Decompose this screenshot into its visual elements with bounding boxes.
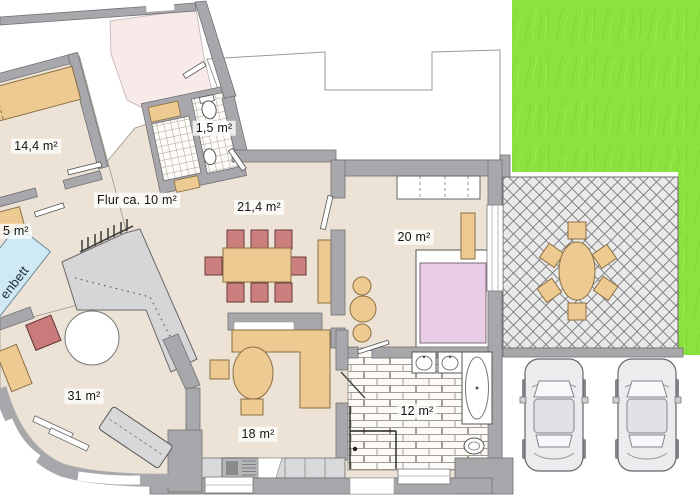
stool	[350, 296, 376, 322]
sideboard-pass	[234, 322, 294, 330]
room-label-21-4: 21,4 m²	[234, 200, 284, 215]
dining-chair	[289, 257, 306, 275]
dining-chair	[251, 283, 268, 302]
bedroom-wardrobe	[397, 176, 480, 199]
bedroom-top-wall	[336, 160, 502, 176]
dining-chair	[251, 230, 268, 249]
room-label-14-4: 14,4 m²	[11, 139, 61, 154]
room-label-12: 12 m²	[398, 404, 437, 419]
hall-label: Flur ca. 10 m²	[94, 193, 180, 208]
room-label-20: 20 m²	[395, 230, 434, 245]
dining-chair	[227, 230, 244, 249]
curved-window	[78, 476, 140, 480]
kitchen-chair	[210, 360, 229, 379]
room-label-31: 31 m²	[65, 389, 104, 404]
patio-chair	[568, 303, 586, 320]
top-wall-notch	[146, 0, 175, 12]
dining-chair	[275, 230, 292, 249]
stool	[353, 277, 371, 295]
living-cabinet	[318, 240, 331, 303]
car	[520, 359, 588, 471]
upper-room-outline	[207, 50, 500, 160]
dining-chair	[205, 257, 222, 275]
right-window	[487, 205, 503, 291]
room-label-wc: 1,5 m²	[193, 121, 236, 136]
car	[613, 359, 681, 471]
living-top-wall	[232, 150, 336, 162]
round-table	[65, 311, 119, 365]
patio-chair	[568, 222, 586, 239]
patio-table	[559, 242, 595, 300]
dining-table	[223, 248, 291, 282]
kitchen-counter-bottom	[188, 458, 345, 478]
dining-chair	[227, 283, 244, 302]
bath-sink	[438, 352, 462, 373]
kitchen-table	[233, 347, 273, 399]
bath-window	[398, 469, 450, 484]
double-bed	[416, 250, 492, 348]
kitchen-chair	[241, 399, 263, 415]
dining-chair	[275, 283, 292, 302]
kitchen-window	[205, 477, 253, 493]
bath-toilet	[464, 438, 484, 454]
bedroom-cabinet	[461, 213, 475, 259]
bathtub	[462, 352, 492, 424]
room-label-5-partial: 5 m²	[0, 224, 32, 239]
patio-parking-wall	[503, 348, 683, 357]
floorplan-drawing	[0, 0, 700, 500]
floorplan: 14,4 m² 1,5 m² Flur ca. 10 m² 21,4 m² 20…	[0, 0, 700, 500]
entry-door-gap	[350, 478, 394, 494]
room-label-18: 18 m²	[239, 427, 278, 442]
bath-sink	[412, 352, 436, 373]
stool	[353, 324, 371, 342]
